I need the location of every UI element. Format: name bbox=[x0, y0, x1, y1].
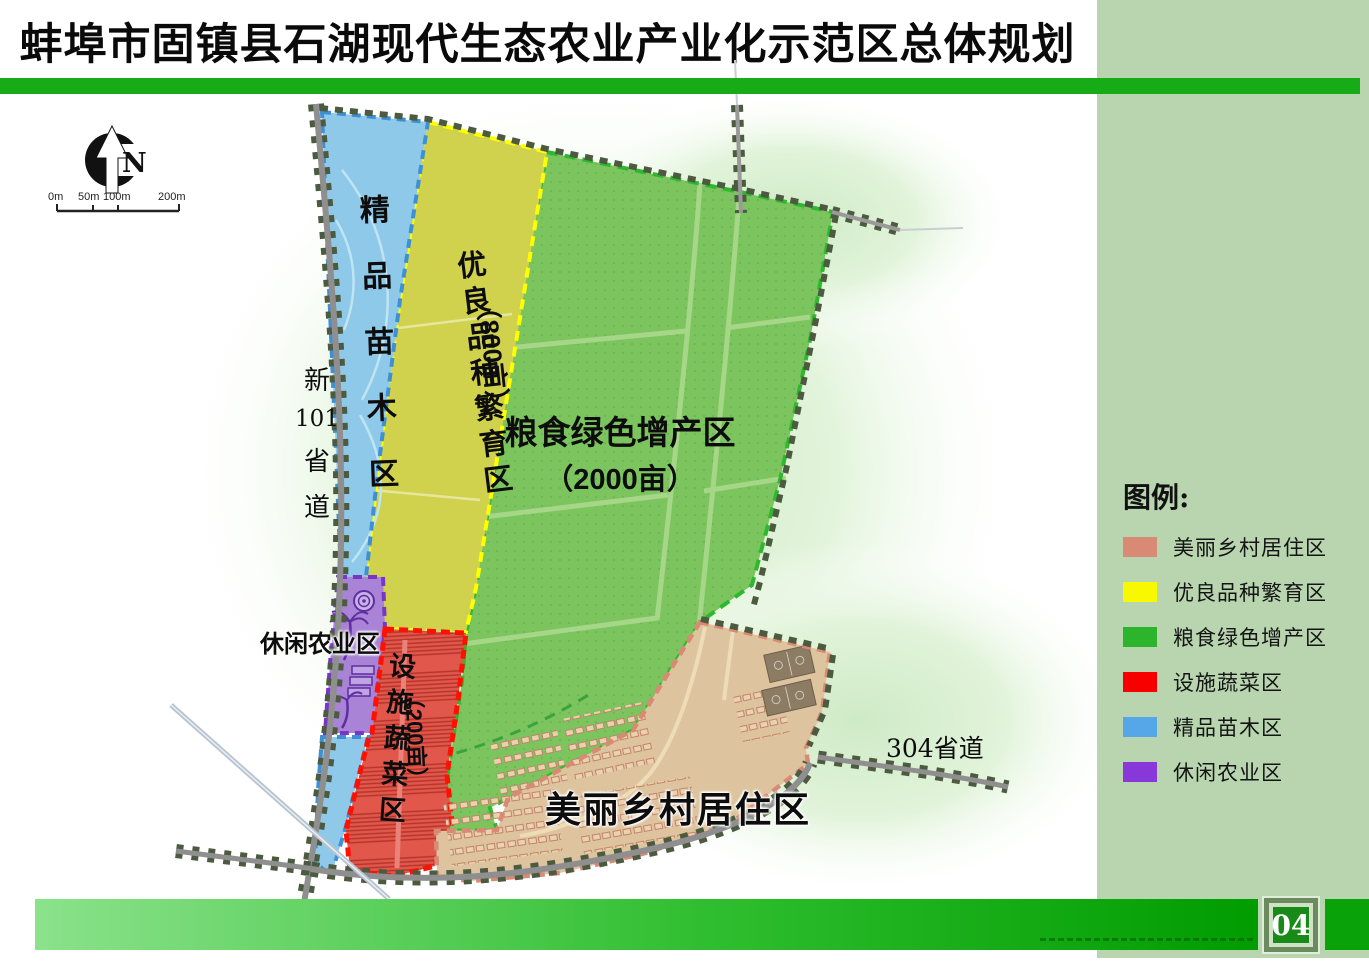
scale-tick-200: 200m bbox=[158, 191, 186, 203]
north-arrow: N bbox=[85, 126, 147, 193]
legend-swatch-village bbox=[1123, 537, 1157, 557]
legend-label: 粮食绿色增产区 bbox=[1173, 622, 1327, 652]
zone-label-grain: 粮食绿色增产区 （2000亩） bbox=[498, 406, 742, 498]
zone-area-grain: （2000亩） bbox=[498, 456, 742, 498]
legend-label: 设施蔬菜区 bbox=[1173, 667, 1283, 697]
legend-row: 休闲农业区 bbox=[1123, 757, 1353, 787]
scale-tick-50: 50m bbox=[78, 191, 99, 203]
zone-label-grain-name: 粮食绿色增产区 bbox=[498, 406, 742, 454]
side-panel: 图例: 美丽乡村居住区 优良品种繁育区 粮食绿色增产区 设施蔬菜区 精品苗木区 bbox=[1097, 0, 1369, 958]
road-101-char: 新 bbox=[304, 360, 330, 397]
road-101-number: 101 bbox=[295, 406, 339, 432]
legend-label: 精品苗木区 bbox=[1173, 712, 1283, 742]
legend-label: 休闲农业区 bbox=[1173, 757, 1283, 787]
footer-bar-right-block bbox=[1325, 899, 1369, 950]
north-label: N bbox=[122, 148, 147, 179]
road-label-101: 新 101 省 道 bbox=[292, 360, 342, 524]
legend-row: 粮食绿色增产区 bbox=[1123, 622, 1353, 652]
road-label-304: 304省道 bbox=[886, 729, 984, 765]
road-101-char: 道 bbox=[304, 487, 330, 524]
legend-row: 优良品种繁育区 bbox=[1123, 577, 1353, 607]
zone-label-leisure: 休闲农业区 bbox=[260, 624, 380, 659]
page-number: 04 bbox=[1273, 907, 1309, 943]
legend-swatch-nursery bbox=[1123, 717, 1157, 737]
planning-poster: N 0m 50m 100m 200m 精品苗木区 优良品种繁育区 （800亩） … bbox=[0, 0, 1369, 964]
page-number-box: 04 bbox=[1262, 896, 1320, 954]
legend-swatch-vegetable bbox=[1123, 672, 1157, 692]
legend: 图例: 美丽乡村居住区 优良品种繁育区 粮食绿色增产区 设施蔬菜区 精品苗木区 bbox=[1123, 476, 1353, 802]
legend-row: 精品苗木区 bbox=[1123, 712, 1353, 742]
legend-label: 优良品种繁育区 bbox=[1173, 577, 1327, 607]
legend-row: 设施蔬菜区 bbox=[1123, 667, 1353, 697]
page-number-frame: 04 bbox=[1269, 903, 1313, 947]
title-divider-bar bbox=[0, 78, 1360, 94]
zone-label-village: 美丽乡村居住区 bbox=[545, 781, 811, 833]
legend-row: 美丽乡村居住区 bbox=[1123, 532, 1353, 562]
scale-bar: 0m 50m 100m 200m bbox=[48, 191, 186, 211]
footer-bar bbox=[35, 899, 1258, 950]
legend-swatch-grain bbox=[1123, 627, 1157, 647]
scale-tick-0: 0m bbox=[48, 191, 63, 203]
legend-swatch-leisure bbox=[1123, 762, 1157, 782]
scale-tick-100: 100m bbox=[103, 191, 131, 203]
zone-area-vegetable: （200亩） bbox=[398, 686, 435, 790]
footer-bar-ticks bbox=[1040, 938, 1253, 941]
legend-swatch-breeding bbox=[1123, 582, 1157, 602]
legend-label: 美丽乡村居住区 bbox=[1173, 532, 1327, 562]
road-101-char: 省 bbox=[304, 441, 330, 478]
legend-title: 图例: bbox=[1123, 476, 1353, 516]
